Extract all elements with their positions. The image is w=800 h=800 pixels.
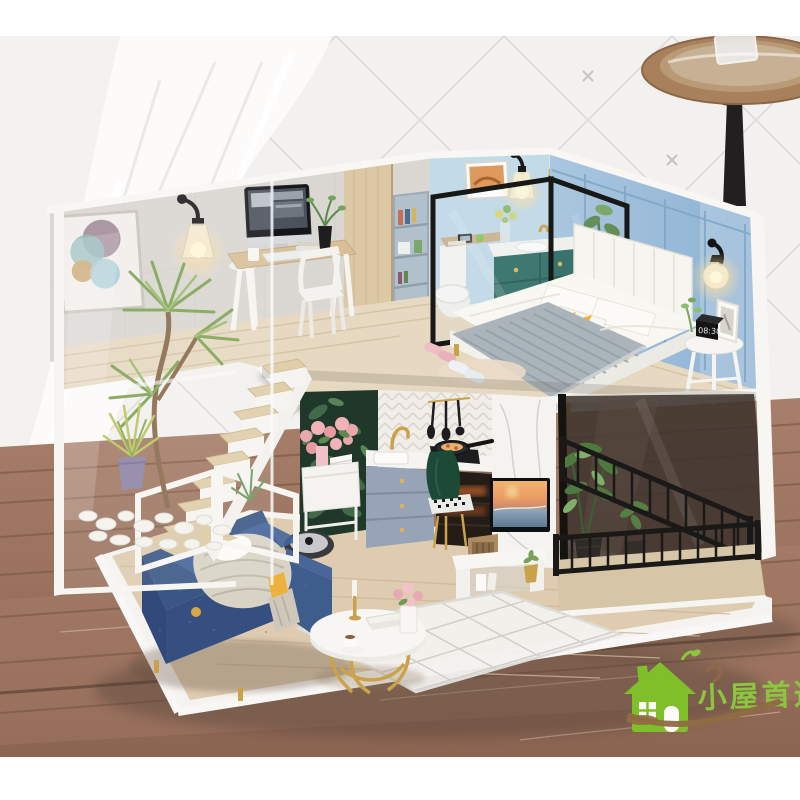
clock-display: 08:30 xyxy=(698,326,722,336)
wall-tv xyxy=(490,478,550,532)
alarm-clock: 08:30 xyxy=(696,314,724,340)
product-photo: 08:30 xyxy=(0,0,800,800)
dollhouse: 08:30 xyxy=(50,150,776,712)
acrylic-front-panel xyxy=(58,179,272,592)
balcony xyxy=(556,394,768,616)
left-corner-post xyxy=(54,207,64,596)
